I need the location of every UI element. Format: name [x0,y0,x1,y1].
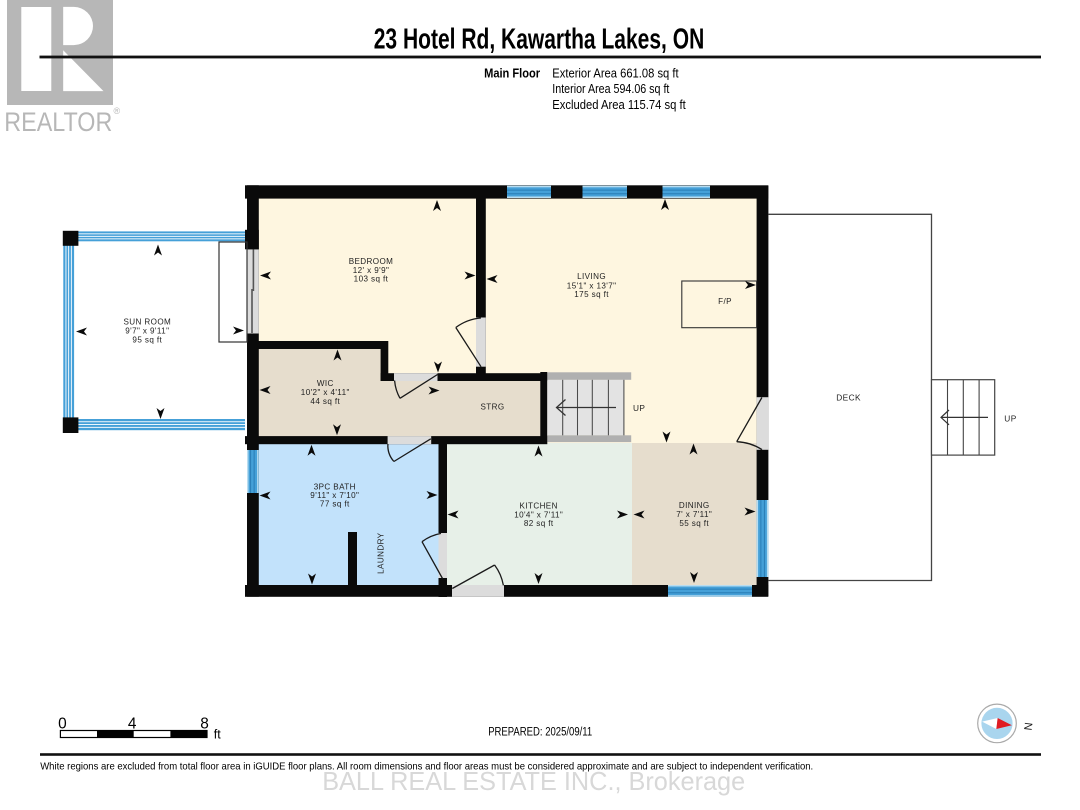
svg-text:175 sq ft: 175 sq ft [574,290,609,299]
svg-text:103 sq ft: 103 sq ft [354,275,389,284]
svg-text:REALTOR: REALTOR [4,107,112,137]
svg-text:12' x 9'9": 12' x 9'9" [353,266,390,275]
svg-text:WIC: WIC [317,379,334,388]
svg-text:DINING: DINING [679,501,710,510]
svg-text:UP: UP [1004,414,1016,424]
svg-text:ft: ft [214,727,221,741]
svg-text:23 Hotel Rd, Kawartha Lakes, O: 23 Hotel Rd, Kawartha Lakes, ON [374,23,705,55]
svg-text:BEDROOM: BEDROOM [349,257,394,266]
svg-text:DECK: DECK [836,393,861,403]
svg-text:®: ® [114,106,121,116]
svg-text:UP: UP [633,403,645,413]
svg-text:95 sq ft: 95 sq ft [132,335,162,344]
svg-text:LAUNDRY: LAUNDRY [377,532,386,574]
svg-text:PREPARED: 2025/09/11: PREPARED: 2025/09/11 [488,725,592,739]
svg-text:BALL REAL ESTATE INC., Brokera: BALL REAL ESTATE INC., Brokerage [322,766,745,796]
svg-text:Interior Area 594.06 sq ft: Interior Area 594.06 sq ft [552,81,669,96]
svg-text:8: 8 [200,715,209,732]
svg-text:Excluded Area 115.74 sq ft: Excluded Area 115.74 sq ft [552,97,686,112]
svg-text:55 sq ft: 55 sq ft [679,519,709,528]
svg-text:LIVING: LIVING [577,272,606,281]
svg-text:15'1" x 13'7": 15'1" x 13'7" [567,281,617,290]
svg-text:KITCHEN: KITCHEN [520,501,558,510]
svg-text:3PC BATH: 3PC BATH [314,482,356,491]
svg-text:77 sq ft: 77 sq ft [320,500,350,509]
svg-text:7' x 7'11": 7' x 7'11" [676,510,712,519]
svg-text:Main Floor: Main Floor [484,65,540,80]
svg-text:F/P: F/P [718,297,732,306]
svg-text:10'2" x 4'11": 10'2" x 4'11" [301,388,350,397]
svg-text:Exterior Area 661.08 sq ft: Exterior Area 661.08 sq ft [552,65,679,80]
svg-text:SUN ROOM: SUN ROOM [123,318,171,327]
svg-text:0: 0 [58,715,67,732]
svg-text:N: N [1021,722,1034,731]
svg-text:STRG: STRG [480,402,504,411]
svg-text:82 sq ft: 82 sq ft [524,519,554,528]
svg-text:4: 4 [128,715,137,732]
svg-text:44 sq ft: 44 sq ft [310,397,340,406]
svg-text:9'7" x 9'11": 9'7" x 9'11" [125,327,169,336]
